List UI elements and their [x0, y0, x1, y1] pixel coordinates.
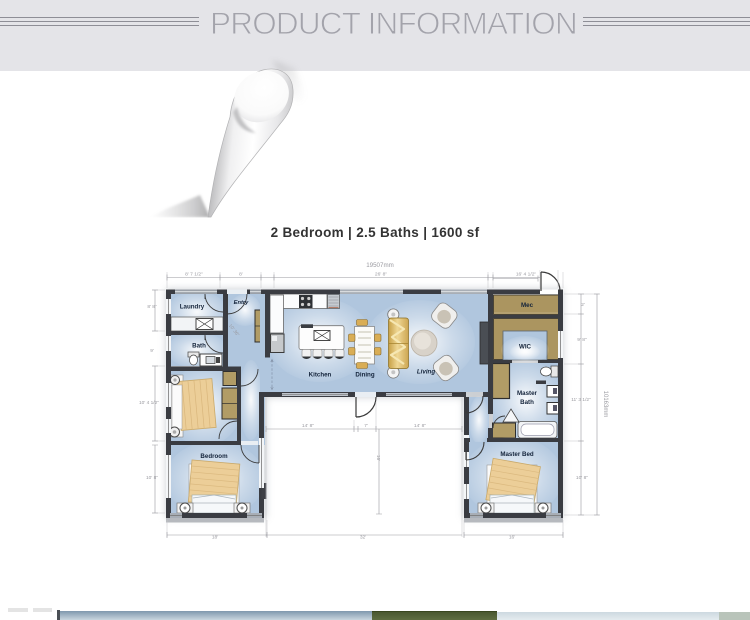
svg-text:10' 8": 10' 8" [146, 475, 158, 481]
svg-text:2': 2' [581, 302, 585, 308]
svg-text:8' 8": 8' 8" [147, 304, 157, 310]
svg-text:8': 8' [239, 272, 243, 278]
svg-text:Laundry: Laundry [180, 304, 205, 311]
svg-text:16' 4 1/2": 16' 4 1/2" [516, 272, 537, 278]
svg-text:10' 8": 10' 8" [576, 475, 588, 481]
svg-text:Bath: Bath [192, 343, 206, 350]
svg-text:Master: Master [517, 390, 538, 397]
svg-text:10163mm: 10163mm [602, 391, 608, 418]
svg-text:16': 16' [509, 535, 515, 541]
svg-text:Master Bed: Master Bed [500, 451, 534, 458]
svg-text:Living: Living [417, 369, 435, 376]
svg-text:14' 8": 14' 8" [302, 423, 314, 429]
svg-text:WIC: WIC [519, 344, 532, 351]
svg-text:8' 7 1/2": 8' 7 1/2" [185, 272, 203, 278]
svg-text:9' 8": 9' 8" [577, 337, 587, 343]
svg-text:16': 16' [375, 455, 381, 461]
svg-text:Mec: Mec [521, 302, 534, 309]
svg-text:14' 8": 14' 8" [414, 423, 426, 429]
svg-text:7': 7' [364, 423, 368, 429]
svg-text:19507mm: 19507mm [366, 262, 394, 269]
svg-text:Kitchen: Kitchen [309, 372, 332, 379]
svg-text:Bedroom: Bedroom [200, 453, 228, 460]
svg-text:32': 32' [360, 535, 366, 541]
svg-text:9': 9' [150, 348, 154, 354]
svg-text:11' 3 1/2": 11' 3 1/2" [571, 397, 591, 403]
svg-text:Entry: Entry [234, 300, 250, 306]
svg-text:Bath: Bath [520, 399, 534, 406]
svg-text:18': 18' [212, 535, 218, 541]
svg-text:10' 4 1/2": 10' 4 1/2" [139, 400, 159, 406]
svg-text:26' 8": 26' 8" [375, 272, 387, 278]
svg-text:Dining: Dining [355, 372, 374, 379]
